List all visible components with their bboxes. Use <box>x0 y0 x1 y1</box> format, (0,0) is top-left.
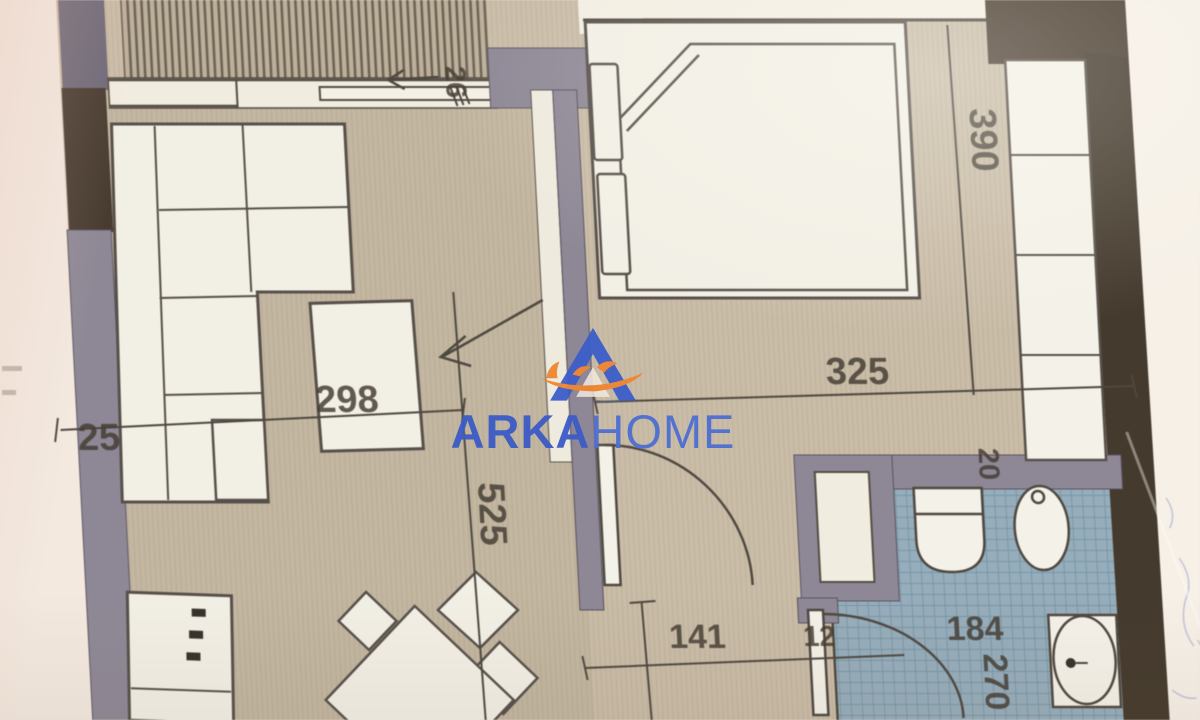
plan-content: 25 26 298 525 325 390 141 12 20 184 270 <box>32 0 1200 720</box>
dim-wall-thickness: 12 <box>802 621 836 653</box>
balcony-decking <box>120 0 490 80</box>
tv-cabinet <box>127 592 233 720</box>
wall-left-dark <box>62 88 114 232</box>
pillow <box>597 174 630 274</box>
av-equipment-icon <box>186 652 200 660</box>
pillow <box>589 64 622 160</box>
tv-cabinet-body <box>127 592 233 720</box>
av-equipment-icon <box>192 608 206 616</box>
sofa-end-table <box>212 420 268 500</box>
dim-bathroom-length: 270 <box>975 654 1016 711</box>
floor-plan-photo: 25 26 298 525 325 390 141 12 20 184 270 <box>0 0 1200 720</box>
dim-bathroom-width: 184 <box>946 610 1005 648</box>
floor-plan-drawing: 25 26 298 525 325 390 141 12 20 184 270 <box>0 0 1200 720</box>
coffee-table <box>310 301 423 452</box>
dim-coffee-table: 298 <box>314 379 380 421</box>
dim-left-wall: 25 <box>77 417 121 459</box>
toilet <box>914 488 986 572</box>
av-equipment-icon <box>189 630 203 638</box>
dim-hall-opening: 141 <box>668 618 727 656</box>
faucet-icon <box>1032 491 1045 503</box>
wall-top-right-dark <box>985 0 1130 64</box>
dim-bedroom-length: 390 <box>960 108 1005 171</box>
shaft-niche <box>815 472 875 582</box>
bed-duvet <box>614 44 907 290</box>
dim-living-length: 525 <box>469 482 514 545</box>
dim-bath-recess: 20 <box>971 448 1005 480</box>
dim-bedroom-width: 325 <box>825 351 891 393</box>
dim-balcony-door: 26 <box>438 66 472 98</box>
wall-left-top-gray <box>58 0 109 90</box>
